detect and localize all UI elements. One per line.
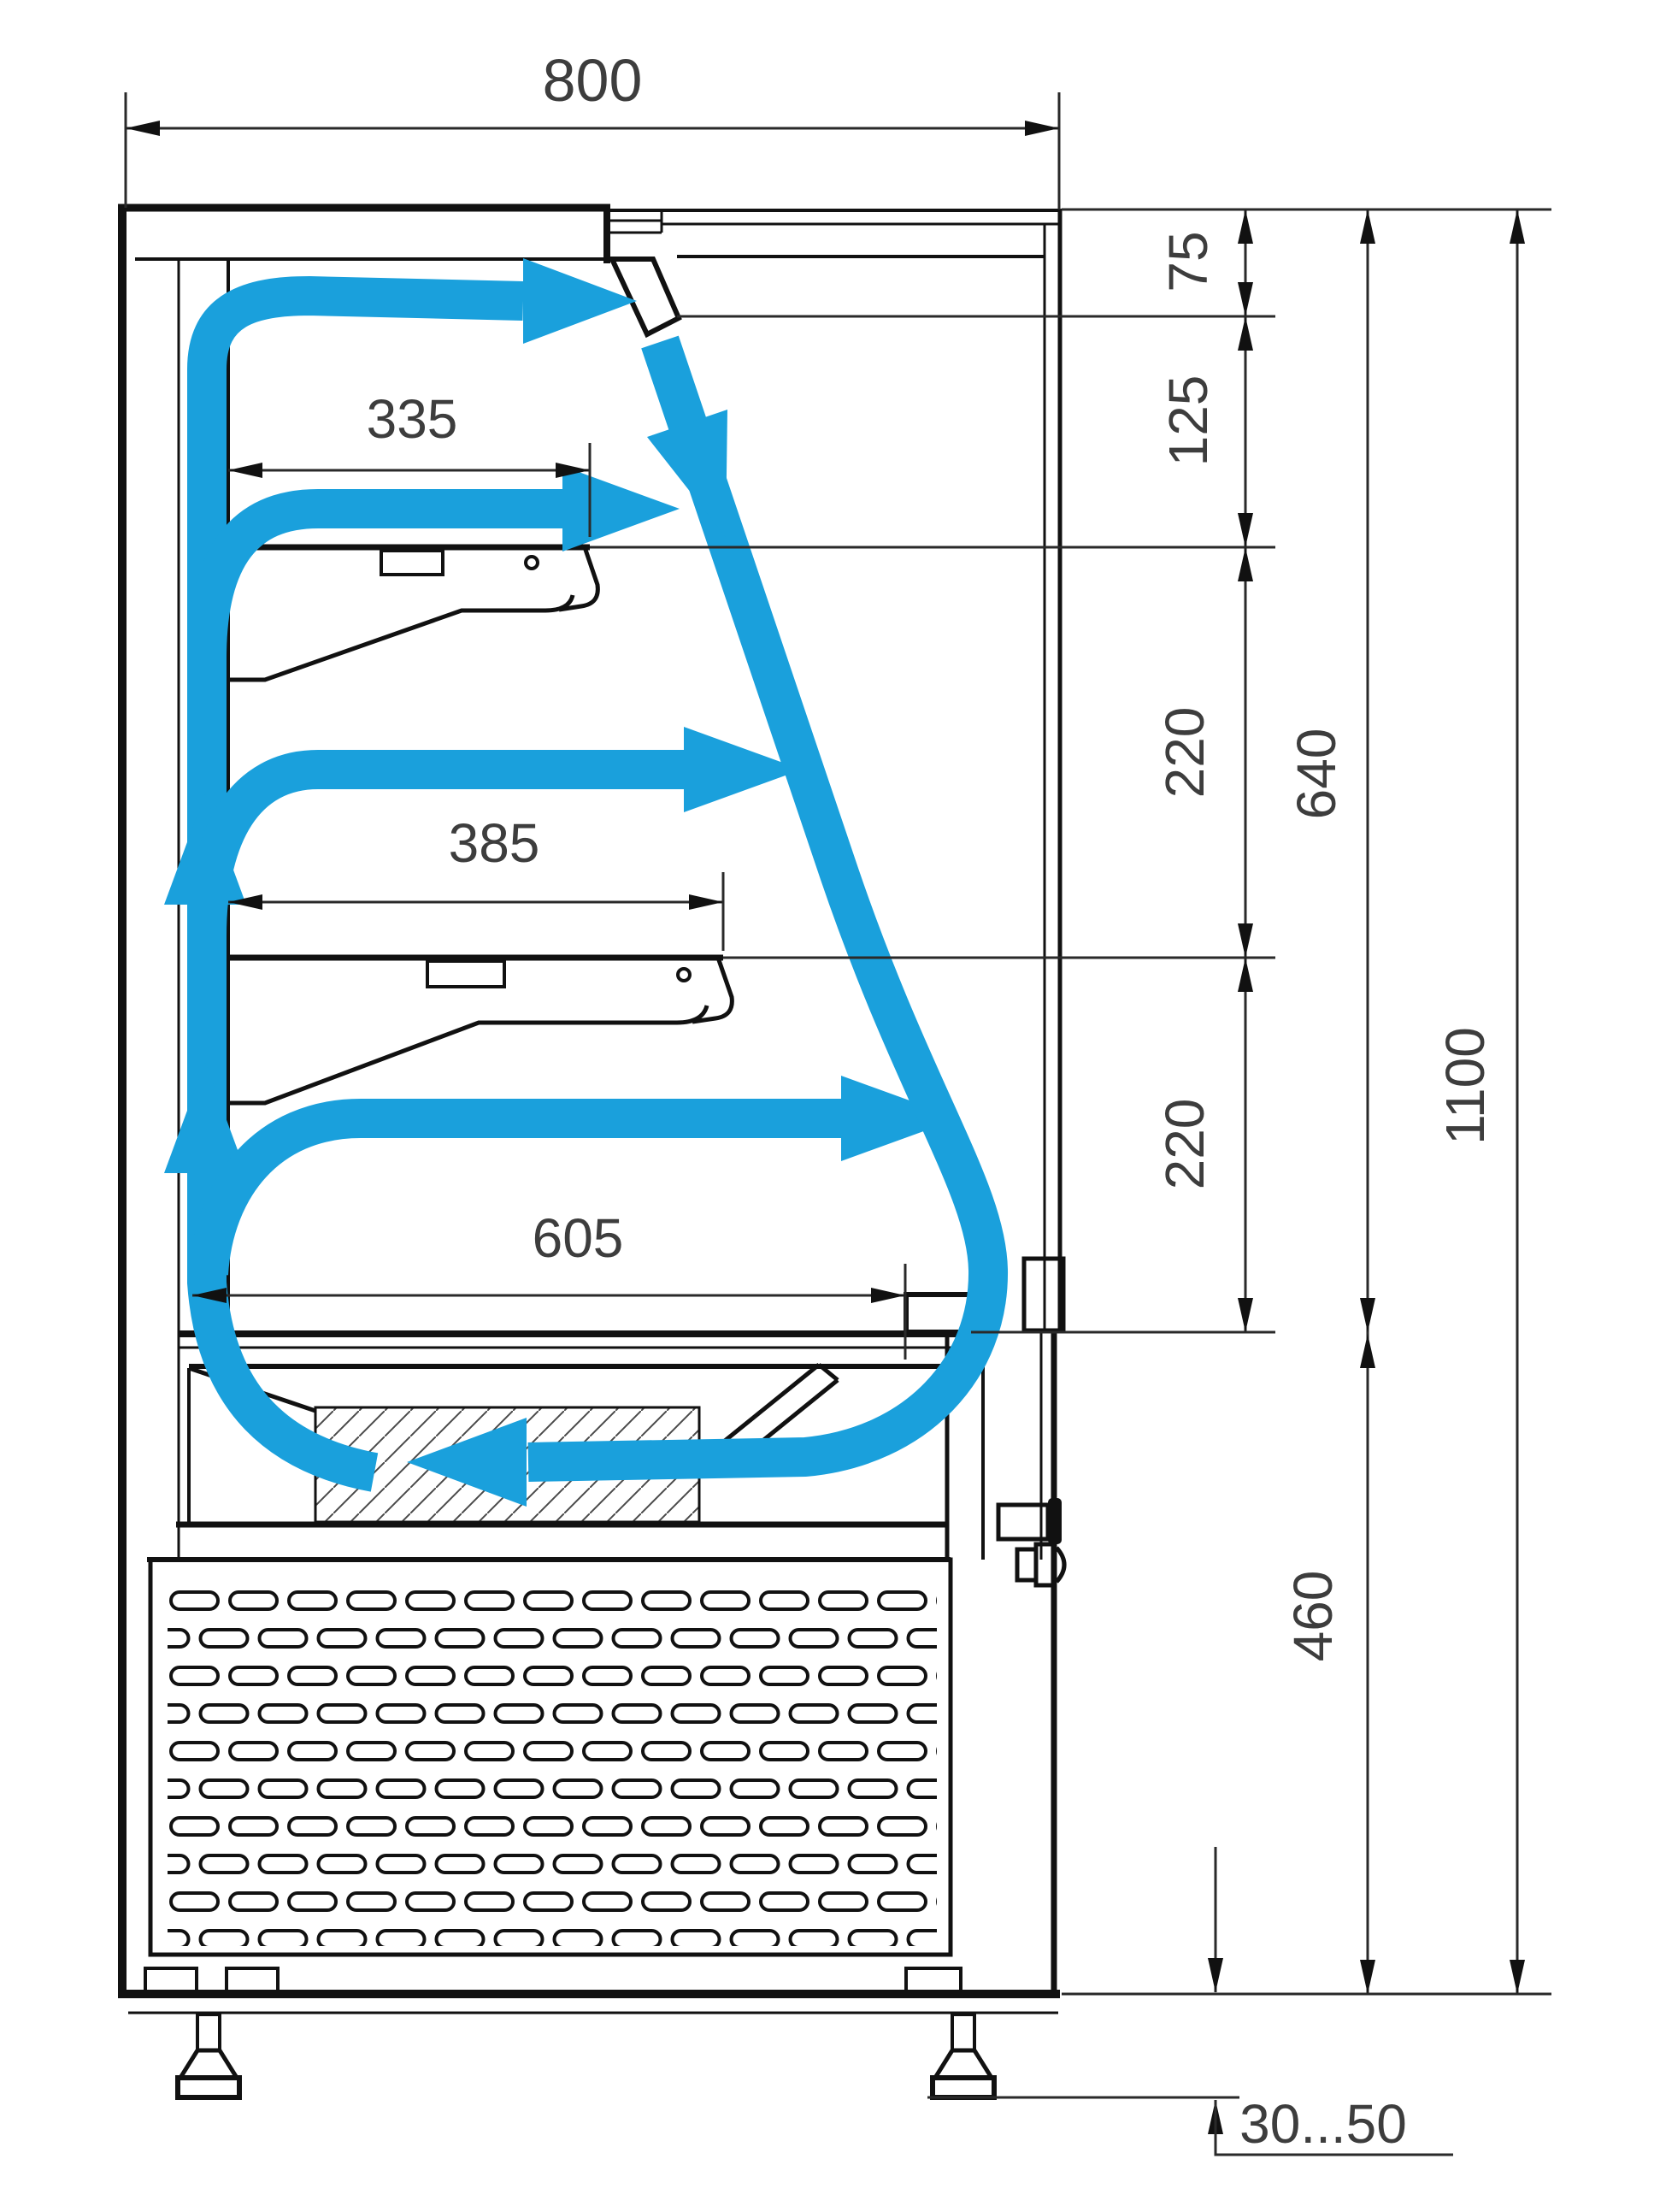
dim-label-800: 800 bbox=[543, 47, 643, 114]
ventilation-grille bbox=[147, 1560, 951, 1955]
dimension-depth-800: 800 bbox=[126, 47, 1059, 209]
technical-drawing: 800 75 125 220 220 bbox=[0, 0, 1660, 2212]
dim-label-335: 335 bbox=[367, 388, 458, 450]
dim-label-125: 125 bbox=[1157, 375, 1219, 467]
airflow-deck-jet bbox=[209, 1118, 841, 1274]
shelf-1 bbox=[218, 547, 597, 680]
dim-label-605: 605 bbox=[533, 1207, 624, 1269]
grille-slots bbox=[168, 1587, 937, 1946]
drawing-canvas: 800 75 125 220 220 bbox=[0, 0, 1660, 2212]
dimension-shelf2-385: 385 bbox=[228, 812, 723, 951]
side-latch bbox=[998, 1498, 1064, 1585]
dimension-legs-30-50: 30...50 bbox=[1208, 1847, 1453, 2155]
base bbox=[122, 1968, 1060, 2013]
right-foot bbox=[933, 2014, 994, 2097]
dimension-chain-right: 75 125 220 220 bbox=[1154, 209, 1253, 1332]
dimension-640-460: 640 460 bbox=[1282, 209, 1375, 1994]
dim-label-220b: 220 bbox=[1154, 1099, 1216, 1190]
dim-label-220a: 220 bbox=[1154, 707, 1216, 799]
airflow-arrows bbox=[164, 258, 988, 1507]
dim-label-30-50: 30...50 bbox=[1239, 2093, 1407, 2155]
dim-label-460: 460 bbox=[1282, 1571, 1344, 1662]
shelf-2 bbox=[218, 958, 732, 1103]
dim-label-75: 75 bbox=[1157, 231, 1219, 292]
dim-label-1100: 1100 bbox=[1434, 1027, 1496, 1145]
left-foot bbox=[178, 2014, 239, 2097]
dim-label-640: 640 bbox=[1286, 728, 1347, 820]
dim-label-385: 385 bbox=[449, 812, 540, 874]
airflow-diagonal-arrow-icon bbox=[647, 410, 727, 537]
airflow-right-arrow-icon bbox=[562, 466, 680, 552]
dimension-1100: 1100 bbox=[1434, 209, 1525, 1994]
airflow-shelf2-jet bbox=[207, 770, 684, 936]
